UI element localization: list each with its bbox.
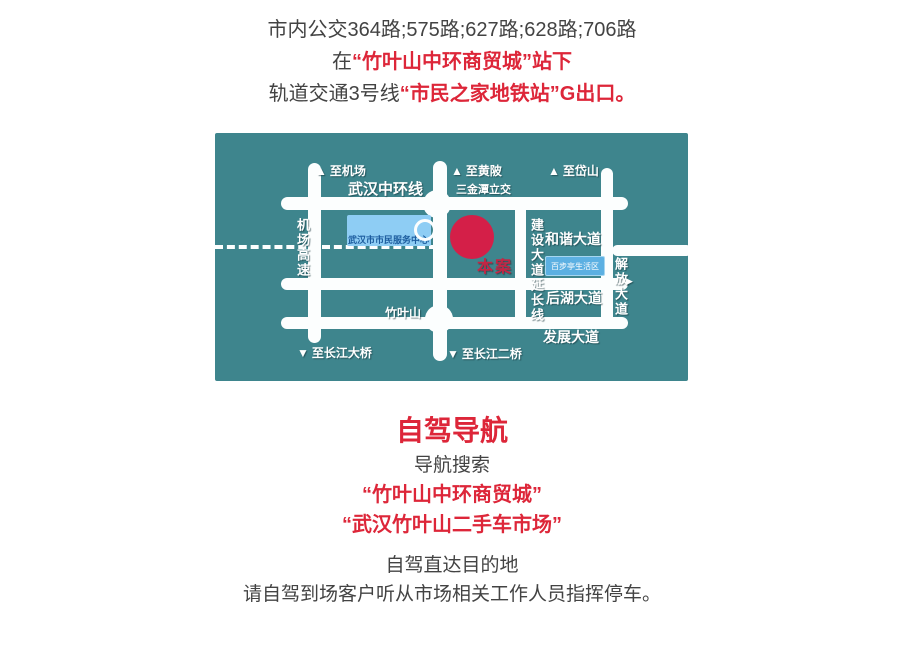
bus-route-line: 市内公交364路;575路;627路;628路;706路 [0,18,904,42]
houhu-ave-label: 后湖大道 [546,288,602,308]
driving-subtitle: 导航搜索 [0,454,904,478]
up-arrow-icon: ▲ [315,164,327,178]
service-center-ring-icon [414,219,436,241]
fazhan-ave-label: 发展大道 [543,327,599,347]
jiefang-ave-label: 解放大道 [611,257,630,317]
to-changjiang-bridge-label: ▼ 至长江大桥 [297,344,372,361]
jianshe-ext-label: 建设大道延长线 [527,218,546,323]
road-hexie [612,245,688,256]
zhuyeshan-interchange-circle [425,305,453,333]
road-jianshe-ext [515,203,526,329]
bus-route-text: 市内公交364路;575路;627路;628路;706路 [267,19,636,41]
to-daishan-label: ▲ 至岱山 [548,162,599,179]
to-changjiang2-bridge-label: ▼ 至长江二桥 [447,345,522,362]
bus-stop-line: 在“竹叶山中环商贸城”站下 [0,50,904,74]
sanjintan-label: 三金潭立交 [456,181,511,197]
location-map: 武汉市市民服务中心 本案 百步亭生活区 ▲ 至机场 武汉中环线 ▲ 至黄陂 三金… [215,133,688,381]
metro-prefix: 轨道交通3号线 [269,83,400,105]
driving-note-2: 请自驾到场客户听从市场相关工作人员指挥停车。 [0,583,904,607]
to-airport-label: ▲ 至机场 [315,162,366,179]
baibuting-block: 百步亭生活区 [545,256,605,276]
driving-search-term-1: “竹叶山中环商贸城” [0,483,904,507]
stop-prefix: 在 [332,51,352,73]
sanjintan-interchange-circle [423,190,451,218]
down-arrow-icon: ▼ [297,346,309,360]
up-arrow-icon: ▲ [548,164,560,178]
airport-expressway-label: 机场高速 [293,218,312,278]
stop-name: “竹叶山中环商贸城”站下 [352,51,572,73]
up-arrow-icon: ▲ [451,164,463,178]
zhuyeshan-label: 竹叶山 [385,304,421,321]
down-arrow-icon: ▼ [447,347,459,361]
metro-line: 轨道交通3号线“市民之家地铁站”G出口。 [0,82,904,106]
driving-note-1: 自驾直达目的地 [0,554,904,578]
right-arrow-icon: ▶ [626,276,633,287]
road-ring [281,197,628,210]
to-huangpi-label: ▲ 至黄陂 [451,162,502,179]
ring-road-label: 武汉中环线 [348,178,423,199]
site-marker-label: 本案 [477,253,513,277]
metro-station: “市民之家地铁站”G出口。 [400,83,636,105]
driving-title: 自驾导航 [0,415,904,447]
hexie-ave-label: 和谐大道 [545,229,601,249]
driving-search-term-2: “武汉竹叶山二手车市场” [0,513,904,537]
baibuting-label: 百步亭生活区 [551,261,599,272]
